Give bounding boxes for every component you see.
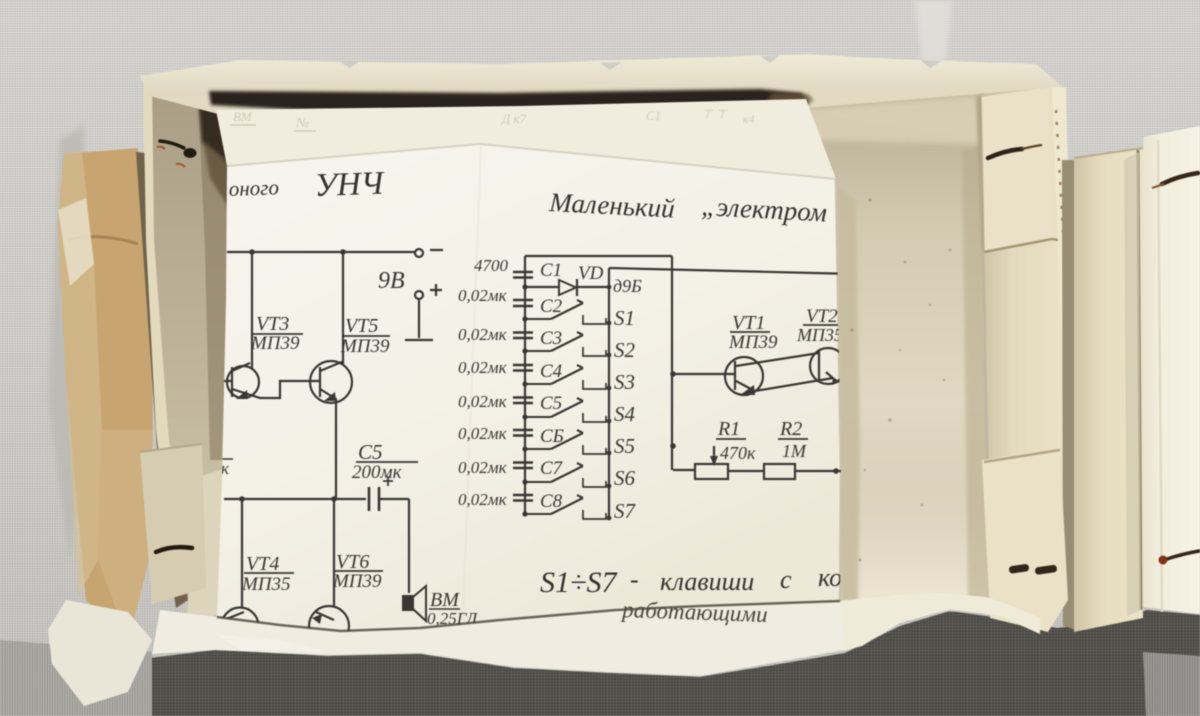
svg-text:МП35: МП35 <box>241 574 291 595</box>
svg-text:С4: С4 <box>540 361 563 382</box>
svg-text:VT2: VT2 <box>806 306 838 327</box>
svg-text:МП39: МП39 <box>340 336 390 357</box>
svg-text:С1: С1 <box>540 260 562 281</box>
svg-text:VT1: VT1 <box>732 312 765 334</box>
svg-text:клавиши: клавиши <box>660 567 754 596</box>
svg-text:МП39: МП39 <box>728 332 778 353</box>
svg-text:R1: R1 <box>717 418 740 440</box>
svg-text:С7: С7 <box>540 458 564 479</box>
svg-text:С5: С5 <box>540 393 562 414</box>
svg-text:S7: S7 <box>614 499 637 523</box>
svg-text:УНЧ: УНЧ <box>314 166 386 204</box>
svg-text:МП35: МП35 <box>796 325 843 345</box>
svg-text:ВМ: ВМ <box>233 109 253 124</box>
svg-text:470к: 470к <box>720 443 756 463</box>
svg-text:VT5: VT5 <box>345 315 378 337</box>
svg-text:1М: 1М <box>782 441 807 461</box>
svg-text:0,02мк: 0,02мк <box>458 325 508 344</box>
svg-text:VT4: VT4 <box>246 553 279 575</box>
svg-text:ко: ко <box>818 563 842 592</box>
svg-text:S5: S5 <box>614 434 635 458</box>
svg-text:0,02мк: 0,02мк <box>458 286 508 305</box>
svg-text:оного: оного <box>228 175 279 201</box>
svg-text:0,02мк: 0,02мк <box>458 490 508 509</box>
svg-text:R2: R2 <box>779 418 802 440</box>
svg-text:4700: 4700 <box>474 256 509 275</box>
svg-text:МП39: МП39 <box>250 333 300 354</box>
svg-text:СБ: СБ <box>540 426 564 447</box>
svg-text:С2: С2 <box>540 296 563 317</box>
svg-text:-: - <box>630 565 639 594</box>
svg-text:VT6: VT6 <box>336 551 369 573</box>
svg-text:С8: С8 <box>540 491 563 512</box>
svg-text:ВМ: ВМ <box>430 589 460 611</box>
svg-text:S2: S2 <box>614 338 636 362</box>
svg-text:0,02мк: 0,02мк <box>458 458 508 477</box>
svg-text:⊤ ⊤: ⊤ ⊤ <box>701 107 729 122</box>
svg-text:С1: С1 <box>646 108 661 123</box>
svg-text:С5: С5 <box>358 440 383 464</box>
svg-text:0,02мк: 0,02мк <box>458 392 508 411</box>
svg-text:VD: VD <box>578 263 604 284</box>
svg-text:200мк: 200мк <box>352 462 403 483</box>
svg-text:С3: С3 <box>540 328 562 349</box>
svg-text:д9Б: д9Б <box>613 276 642 296</box>
svg-text:VT3: VT3 <box>256 313 289 335</box>
svg-text:S3: S3 <box>614 370 635 394</box>
svg-text:S1: S1 <box>614 306 635 330</box>
svg-text:S6: S6 <box>614 466 636 490</box>
svg-text:МП39: МП39 <box>332 571 382 592</box>
svg-text:№: № <box>295 116 309 131</box>
svg-text:работающими: работающими <box>620 597 768 627</box>
svg-text:с: с <box>780 565 792 594</box>
svg-text:S1÷S7: S1÷S7 <box>540 566 618 599</box>
svg-text:к4: к4 <box>743 112 755 126</box>
svg-text:Д к7: Д к7 <box>500 111 527 126</box>
svg-text:S4: S4 <box>614 402 636 426</box>
svg-text:9В: 9В <box>378 268 405 294</box>
svg-text:0,02мк: 0,02мк <box>458 358 508 377</box>
svg-text:0,02мк: 0,02мк <box>458 424 508 443</box>
